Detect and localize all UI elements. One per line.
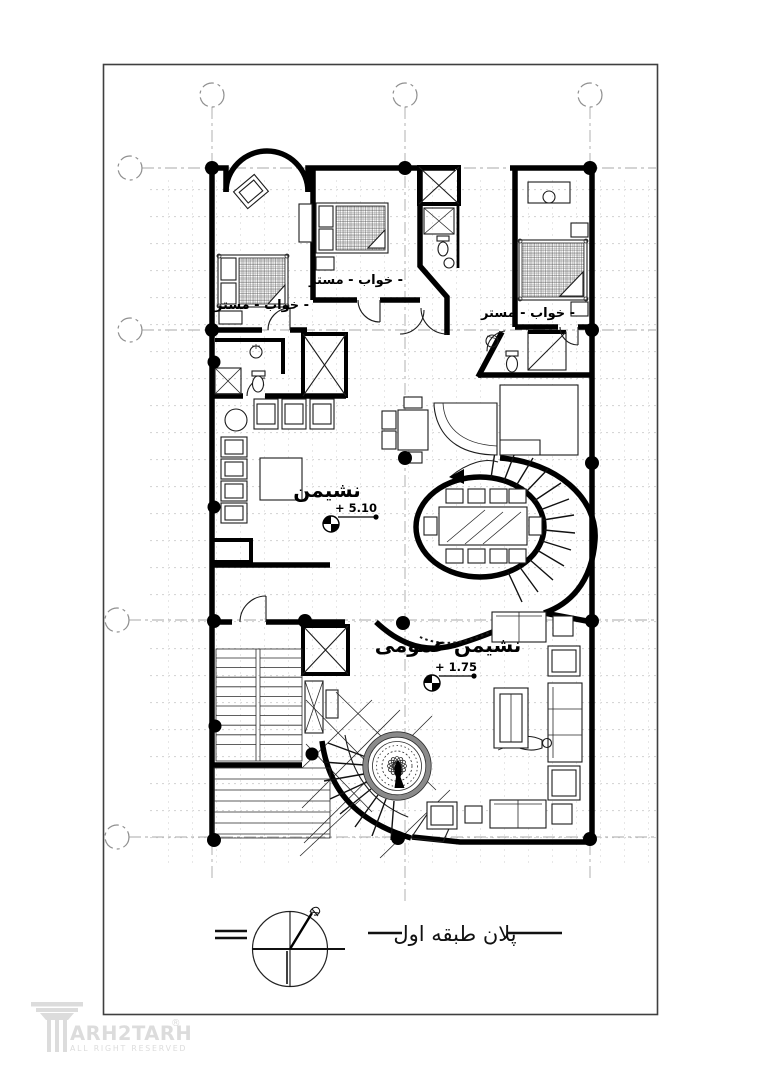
level-value-living: + 5.10: [335, 501, 377, 515]
label-bedroom-left: خواب - مستر -: [214, 298, 309, 313]
label-bedroom-right: خواب - مستر -: [480, 306, 575, 321]
floor-plan-canvas: خواب - مستر - خواب - مستر - خواب - مستر …: [0, 0, 763, 1080]
drawing-title: پلان طبقه اول: [393, 922, 516, 946]
drawing-sheet: خواب - مستر - خواب - مستر - خواب - مستر …: [0, 0, 763, 1080]
level-value-family: + 1.75: [435, 660, 477, 674]
registered-mark: ®: [171, 1018, 181, 1029]
rosette-fountain: [363, 732, 431, 800]
label-bedroom-middle: خواب - مستر -: [308, 273, 403, 288]
label-family-living-room: نشیمن عمومی: [375, 633, 522, 657]
label-living-room: نشیمن: [293, 478, 360, 502]
brand-tagline: ALL RIGHT RESERVED: [70, 1044, 187, 1053]
